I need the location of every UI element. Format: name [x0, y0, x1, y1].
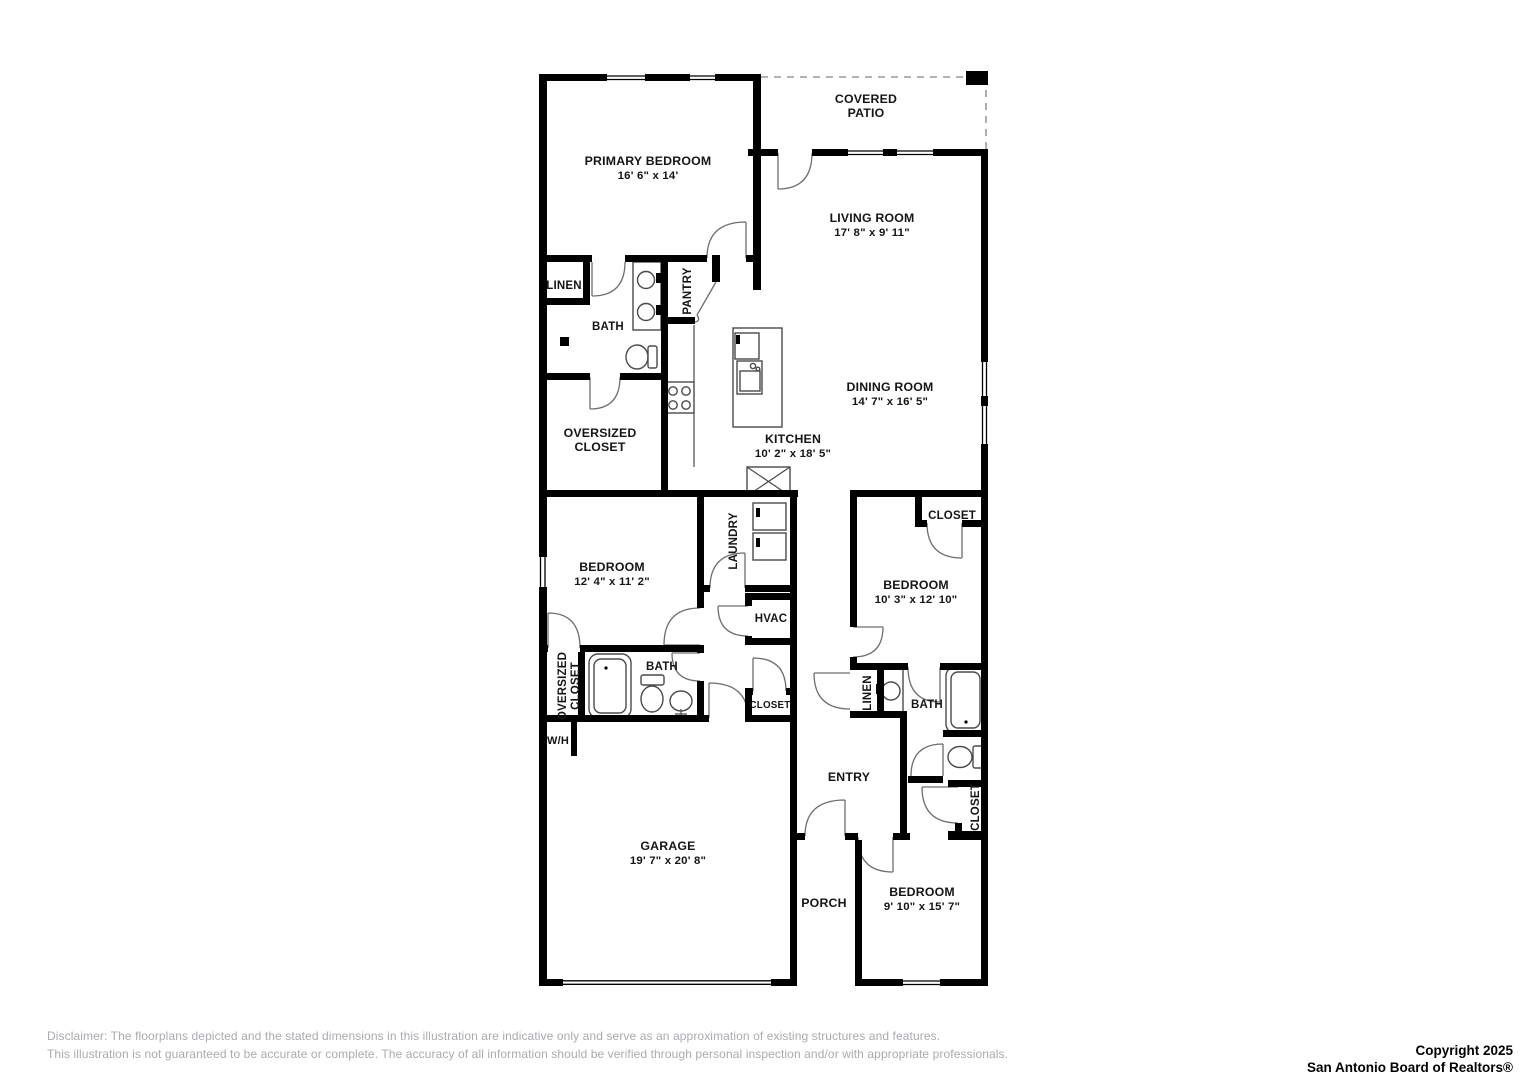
- copyright-line-1: Copyright 2025: [1415, 1043, 1513, 1058]
- room-label-bedroom-4: BEDROOM9' 10" x 15' 7": [884, 885, 960, 913]
- copyright-line-2: San Antonio Board of Realtors®: [1307, 1060, 1513, 1075]
- room-label-bath-2: BATH: [646, 661, 678, 673]
- room-label-porch: PORCH: [801, 896, 846, 910]
- room-label-oversized-closet-2: OVERSIZEDCLOSET: [557, 652, 582, 720]
- room-label-bedroom-2: BEDROOM12' 4" x 11' 2": [574, 560, 650, 588]
- garage-door: [563, 981, 771, 985]
- floorplan-page: COVEREDPATIOPRIMARY BEDROOM16' 6" x 14'L…: [0, 0, 1527, 1080]
- floorplan-drawing: COVEREDPATIOPRIMARY BEDROOM16' 6" x 14'L…: [0, 0, 1527, 1080]
- room-label-water-heater: W/H: [547, 735, 569, 747]
- room-label-garage: GARAGE19' 7" x 20' 8": [630, 839, 706, 867]
- kitchen-counter: [665, 325, 694, 467]
- room-label-linen-2: LINEN: [862, 675, 874, 711]
- room-label-closet-hall: CLOSET: [750, 700, 791, 711]
- room-label-bedroom-3: BEDROOM10' 3" x 12' 10": [875, 578, 958, 606]
- room-label-covered-patio: COVEREDPATIO: [835, 92, 897, 120]
- room-label-dining-room: DINING ROOM14' 7" x 16' 5": [847, 380, 934, 408]
- room-label-bath-3: BATH: [911, 699, 943, 711]
- room-label-closet-bedroom3: CLOSET: [928, 510, 976, 522]
- patio-post: [966, 71, 988, 85]
- room-label-closet-bedroom4: CLOSET: [970, 783, 982, 831]
- disclaimer-line-1: Disclaimer: The floorplans depicted and …: [47, 1029, 1147, 1043]
- disclaimer-line-2: This illustration is not guaranteed to b…: [47, 1047, 1147, 1061]
- shower-drain-mark: [560, 337, 569, 346]
- washer-dryer: [753, 503, 786, 560]
- room-label-linen-primary: LINEN: [546, 280, 582, 292]
- room-label-hvac: HVAC: [755, 613, 788, 625]
- room-label-entry: ENTRY: [828, 770, 870, 784]
- room-label-bath-primary: BATH: [592, 321, 624, 333]
- room-label-laundry: LAUNDRY: [728, 512, 740, 569]
- room-label-primary-bedroom: PRIMARY BEDROOM16' 6" x 14': [585, 154, 712, 182]
- room-label-oversized-closet-primary: OVERSIZEDCLOSET: [564, 426, 637, 454]
- room-label-pantry: PANTRY: [682, 267, 694, 314]
- primary-bath-toilet: [626, 345, 657, 369]
- room-label-kitchen: KITCHEN10' 2" x 18' 5": [755, 432, 831, 460]
- room-label-living-room: LIVING ROOM17' 8" x 9' 11": [830, 211, 915, 239]
- primary-bath-vanity: [633, 262, 661, 330]
- kitchen-island: [733, 328, 782, 427]
